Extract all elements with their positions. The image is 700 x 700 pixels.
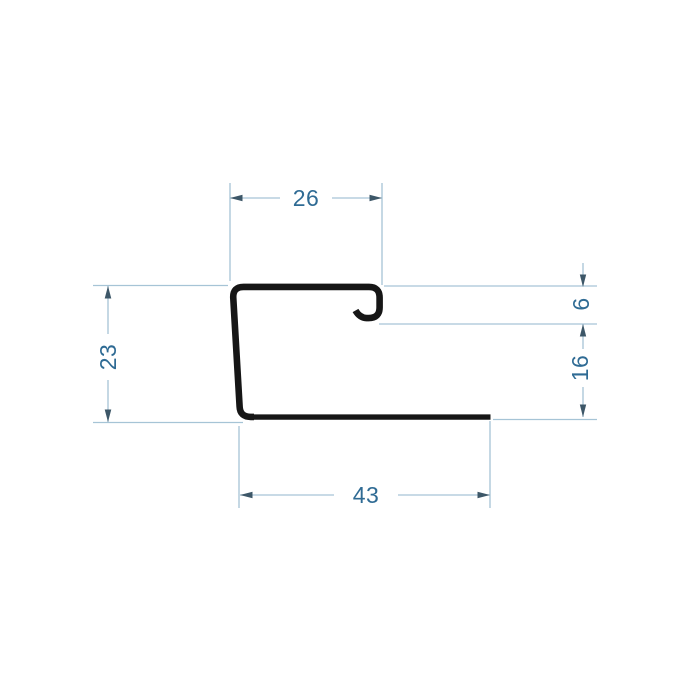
dimension-hook-return: 6 [379, 263, 597, 324]
dim-26-label: 26 [293, 185, 320, 211]
dim-26-arrow-left [230, 195, 243, 202]
dim-6-label: 6 [568, 297, 594, 310]
dim-16-arrow-down [580, 405, 586, 418]
dim-26-arrow-right [370, 195, 383, 202]
dim-16-label: 16 [567, 355, 593, 382]
dim-43-label: 43 [353, 482, 380, 508]
dim-43-arrow-right [478, 492, 491, 499]
dimension-right-flange: 16 [493, 324, 597, 420]
dim-16-arrow-up [580, 324, 586, 337]
drawing-canvas: 26 23 6 16 [0, 0, 700, 700]
dimension-left-height: 23 [93, 286, 243, 423]
dimension-top-width: 26 [230, 183, 382, 285]
profile-outline [233, 287, 490, 417]
profile-technical-drawing: 26 23 6 16 [0, 0, 700, 700]
dim-23-arrow-bottom [105, 410, 112, 423]
dim-6-arrow-down [580, 275, 586, 288]
profile-main-path [233, 287, 379, 417]
dimension-bottom-width: 43 [239, 421, 490, 508]
dim-23-arrow-top [105, 286, 112, 299]
dim-23-label: 23 [95, 344, 121, 371]
dim-43-arrow-left [240, 492, 253, 499]
